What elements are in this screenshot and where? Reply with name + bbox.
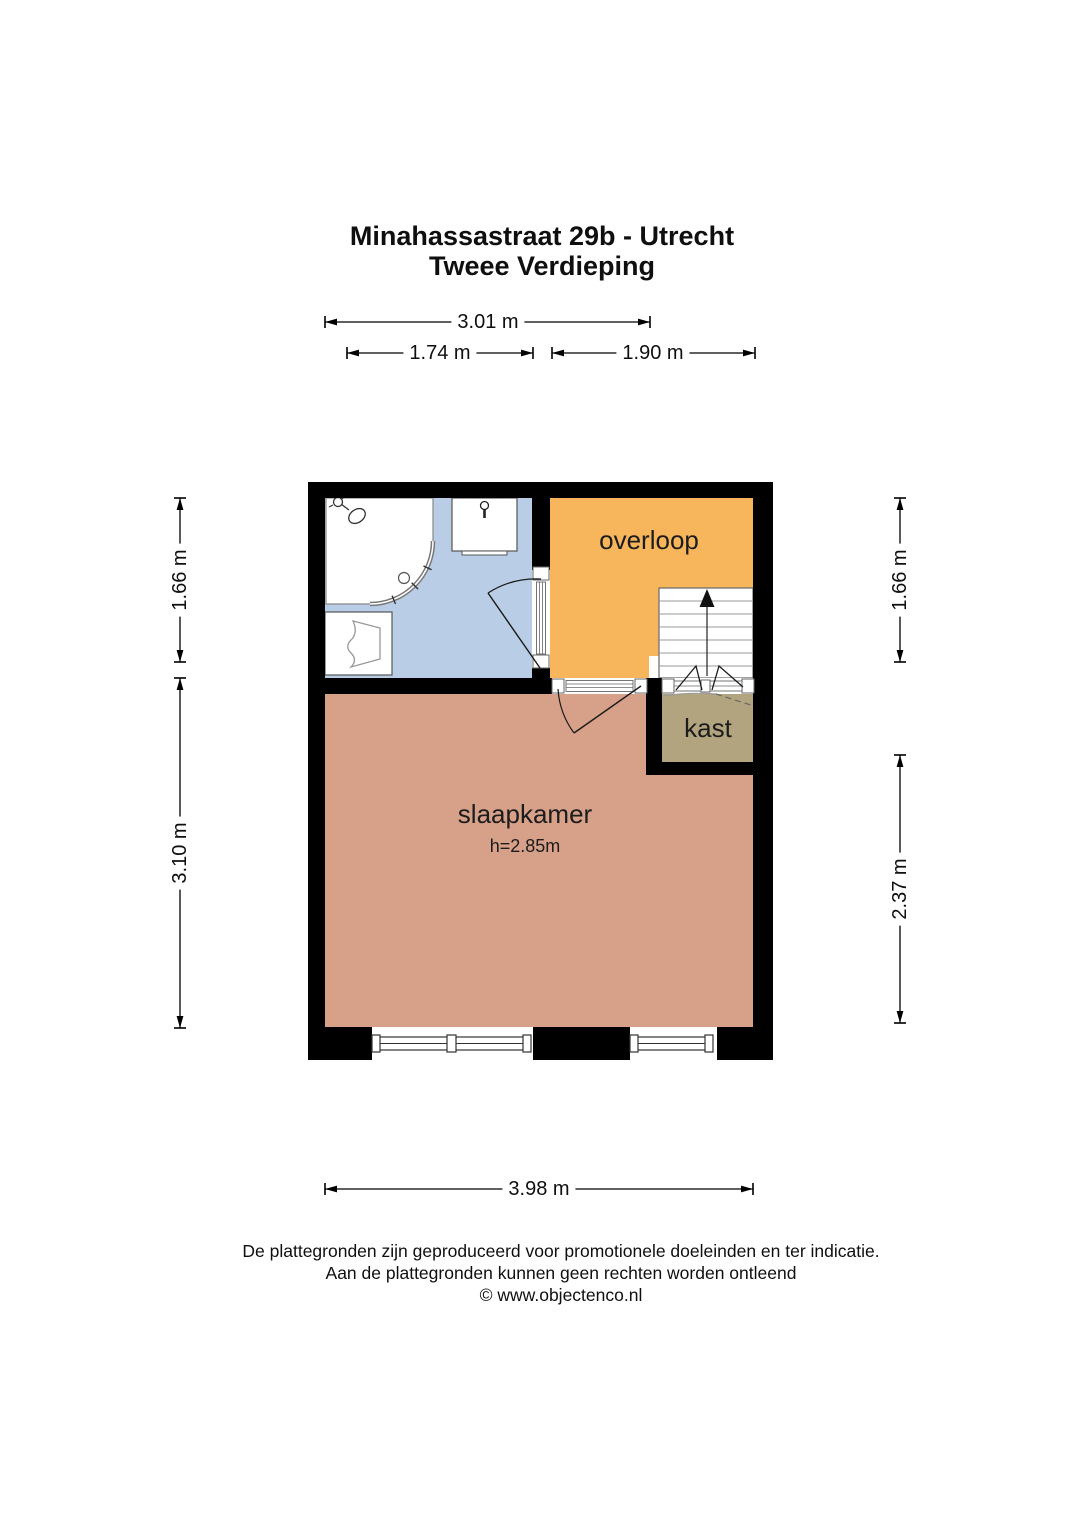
dim-label-right-lower: 2.37 m bbox=[890, 852, 910, 925]
bathroom-fixture bbox=[325, 612, 392, 675]
stairs bbox=[659, 588, 753, 678]
dim-label-right-upper: 1.66 m bbox=[890, 543, 910, 616]
footer-line-1: De plattegronden zijn geproduceerd voor … bbox=[242, 1240, 879, 1262]
shower bbox=[326, 493, 433, 604]
sink bbox=[452, 498, 517, 555]
room-label-overloop: overloop bbox=[599, 527, 699, 553]
dim-label-top-left: 1.74 m bbox=[403, 343, 476, 363]
dim-label-left-upper: 1.66 m bbox=[170, 543, 190, 616]
dim-label-top-total: 3.01 m bbox=[451, 312, 524, 332]
footer-disclaimer: De plattegronden zijn geproduceerd voor … bbox=[242, 1240, 879, 1306]
window-double bbox=[372, 1027, 533, 1060]
stair-landing-notch bbox=[649, 656, 660, 678]
dim-label-left-lower: 3.10 m bbox=[170, 816, 190, 889]
footer-line-2: Aan de plattegronden kunnen geen rechten… bbox=[242, 1262, 879, 1284]
shower-drain bbox=[399, 573, 410, 584]
footer-line-3: © www.objectenco.nl bbox=[242, 1284, 879, 1306]
dim-label-bottom-total: 3.98 m bbox=[502, 1179, 575, 1199]
dim-label-top-right: 1.90 m bbox=[616, 343, 689, 363]
room-height-note: h=2.85m bbox=[490, 837, 561, 855]
room-label-slaapkamer: slaapkamer bbox=[458, 801, 592, 827]
room-label-kast: kast bbox=[684, 715, 732, 741]
window-single bbox=[630, 1027, 717, 1060]
floorplan-page: Minahassastraat 29b - Utrecht Tweee Verd… bbox=[0, 0, 1080, 1527]
